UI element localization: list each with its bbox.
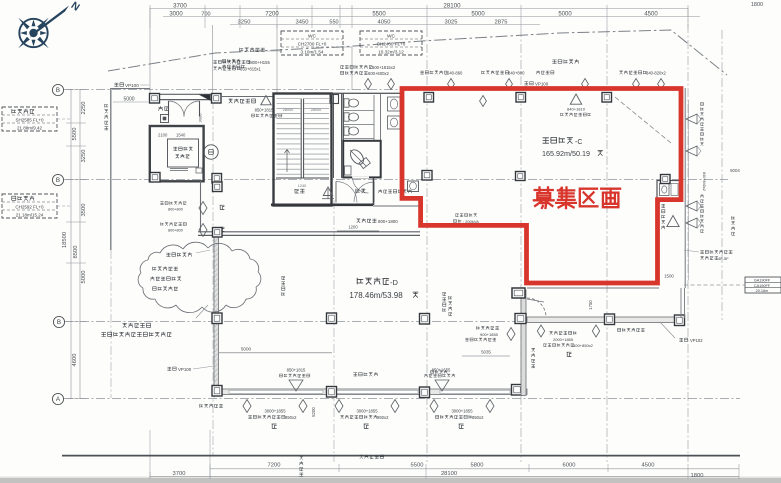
svg-text:4500: 4500 (642, 463, 655, 469)
svg-text:5004: 5004 (730, 168, 740, 173)
svg-text:800+800: 800+800 (168, 208, 183, 212)
svg-text:7200: 7200 (268, 463, 281, 469)
svg-text:4600: 4600 (72, 354, 78, 367)
svg-text:B: B (56, 87, 60, 94)
svg-text:840+800: 840+800 (508, 71, 525, 76)
svg-text:2875: 2875 (495, 20, 508, 26)
svg-text:5000: 5000 (123, 97, 134, 103)
svg-text:600+1815x2: 600+1815x2 (372, 65, 396, 70)
svg-text:1200: 1200 (348, 225, 358, 230)
svg-text:2100: 2100 (158, 133, 168, 138)
svg-text:2000+1855: 2000+1855 (553, 337, 574, 342)
svg-text:4F-5F: 4F-5F (718, 256, 729, 261)
svg-text:WC: WC (308, 34, 317, 40)
svg-text:28000: 28000 (283, 108, 294, 112)
svg-text:21.18m/15.24: 21.18m/15.24 (16, 213, 44, 218)
svg-text:3025: 3025 (445, 20, 458, 26)
svg-text:5500: 5500 (372, 12, 386, 18)
svg-text:WC: WC (387, 34, 396, 40)
svg-text:640-860: 640-860 (447, 71, 463, 76)
svg-text:850x2: 850x2 (377, 415, 389, 420)
svg-text:850+1815: 850+1815 (255, 108, 274, 113)
svg-text:700: 700 (201, 12, 210, 18)
svg-text:850+815x1: 850+815x1 (240, 67, 262, 72)
svg-text:3000+1855: 3000+1855 (356, 409, 378, 414)
svg-text:CH2592 FL+0: CH2592 FL+0 (15, 205, 44, 210)
svg-text:3.10m/1.54: 3.10m/1.54 (301, 50, 324, 55)
svg-text:800+800: 800+800 (168, 229, 183, 233)
svg-text:5500: 5500 (72, 128, 78, 141)
svg-text:1240: 1240 (298, 184, 306, 188)
svg-text:400+850x2: 400+850x2 (573, 343, 594, 348)
svg-text:B: B (57, 319, 61, 326)
svg-text:4050: 4050 (378, 20, 391, 26)
svg-text:4500: 4500 (644, 12, 658, 18)
svg-text:GA190FF: GA190FF (754, 279, 771, 283)
svg-text:5800: 5800 (471, 463, 484, 469)
svg-text:3700: 3700 (173, 3, 187, 10)
svg-text:6000: 6000 (563, 463, 576, 469)
svg-text:600+600x2: 600+600x2 (368, 71, 390, 76)
svg-text:5000: 5000 (558, 12, 572, 18)
svg-text:3250: 3250 (81, 150, 87, 163)
svg-text:3000+1855: 3000+1855 (264, 409, 286, 414)
svg-text:178.46m/53.98: 178.46m/53.98 (349, 291, 403, 300)
svg-text:800+1800: 800+1800 (378, 219, 398, 224)
svg-text:840+1810: 840+1810 (567, 107, 586, 112)
svg-text:-D: -D (390, 278, 398, 287)
svg-text:165.92m/50.19: 165.92m/50.19 (542, 149, 590, 158)
svg-text:VP100: VP100 (535, 82, 549, 87)
svg-text:3000+1855: 3000+1855 (451, 409, 473, 414)
svg-text:3450: 3450 (296, 20, 309, 26)
svg-text:5000: 5000 (241, 347, 252, 352)
svg-text:VP100: VP100 (125, 83, 139, 88)
svg-text:5035: 5035 (481, 350, 491, 355)
svg-text:28000: 28000 (311, 108, 322, 112)
svg-text:840+840x2: 840+840x2 (702, 172, 706, 191)
svg-text:850+1815: 850+1815 (287, 368, 306, 373)
svg-text:840-820x2: 840-820x2 (646, 71, 666, 76)
svg-text:5200: 5200 (311, 407, 316, 417)
svg-text:1800: 1800 (691, 473, 704, 479)
svg-text:2250: 2250 (81, 102, 87, 115)
svg-text:28100: 28100 (441, 471, 457, 477)
svg-text:21.88m/9.42: 21.88m/9.42 (17, 126, 43, 131)
svg-text:VP100: VP100 (178, 367, 192, 372)
svg-text:1540: 1540 (176, 133, 186, 138)
svg-text:8500: 8500 (73, 246, 79, 259)
svg-text:1800: 1800 (751, 2, 763, 8)
svg-text:20.16m: 20.16m (756, 289, 769, 293)
svg-text:CH2700 FL+0: CH2700 FL+0 (298, 42, 327, 47)
svg-text:5000: 5000 (471, 12, 485, 18)
svg-text:2800+H155: 2800+H155 (248, 60, 270, 65)
svg-text:3700: 3700 (173, 471, 186, 477)
svg-text:CH2400 FL+0: CH2400 FL+0 (377, 42, 406, 47)
svg-text:3000: 3000 (169, 12, 183, 18)
svg-text:900+1855: 900+1855 (480, 332, 499, 337)
svg-text:28100: 28100 (443, 3, 461, 10)
svg-text:850+1655: 850+1655 (432, 368, 451, 373)
svg-text:850x2: 850x2 (285, 415, 297, 420)
svg-text:B: B (56, 177, 60, 184)
svg-text:1500: 1500 (664, 274, 674, 279)
svg-text:VP102: VP102 (690, 338, 703, 343)
svg-text:3000: 3000 (198, 113, 203, 123)
svg-text:850x2: 850x2 (472, 415, 484, 420)
svg-text:5000: 5000 (81, 271, 87, 284)
svg-text:SH2585 FL+0: SH2585 FL+0 (16, 118, 44, 123)
svg-text:-C: -C (575, 139, 582, 146)
svg-text:CA190FF: CA190FF (754, 284, 771, 288)
svg-text:1750: 1750 (588, 300, 593, 310)
svg-text:7200: 7200 (265, 12, 279, 18)
svg-text:10.32m/3.12: 10.32m/3.12 (378, 50, 404, 55)
svg-text:550: 550 (329, 20, 338, 26)
svg-text:5500: 5500 (411, 463, 424, 469)
svg-text:3250: 3250 (238, 20, 251, 26)
svg-text:3500: 3500 (81, 204, 87, 217)
svg-text:18500: 18500 (62, 232, 68, 248)
